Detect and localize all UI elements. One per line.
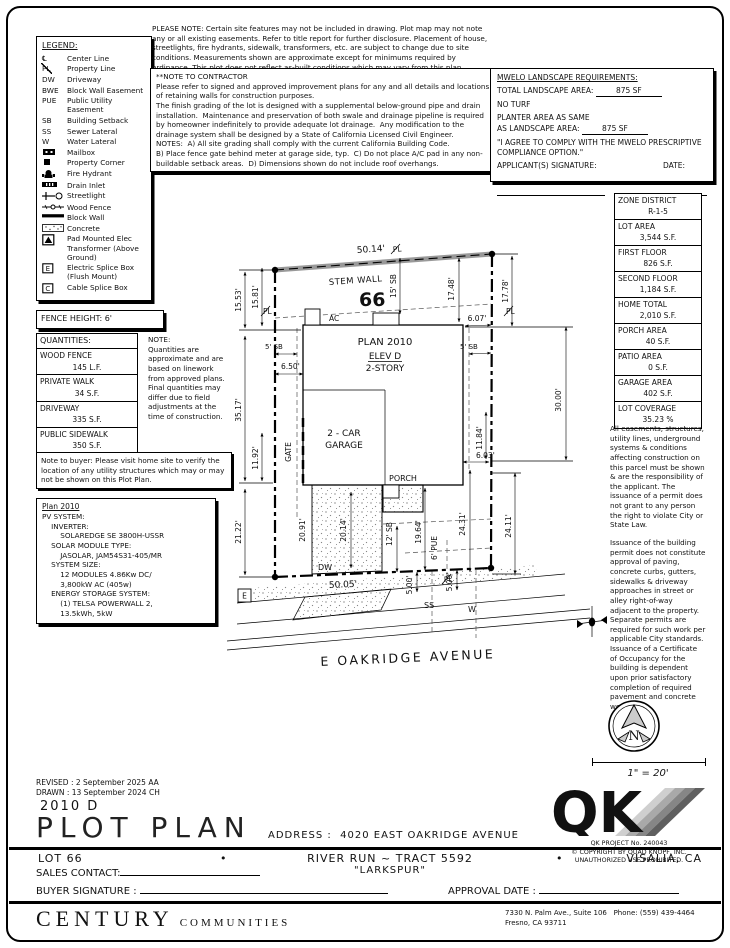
fire-hydrant-symbol: [577, 606, 607, 637]
legend-item: CCable Splice Box: [42, 283, 148, 294]
zone-row: PATIO AREA0 S.F.: [614, 349, 702, 376]
garage-label: GARAGE: [325, 441, 363, 451]
north-label: N: [628, 729, 639, 744]
legend-item: Pad Mounted Elec Transformer (Above Grou…: [42, 234, 148, 261]
quantity-row: PRIVATE WALK34 S.F.: [36, 374, 138, 401]
centerline-icon: ℄: [42, 54, 67, 63]
concrete-icon: [42, 224, 67, 232]
mwelo-planter-value: 875 SF: [582, 124, 648, 135]
garage-label: 2 - CAR: [327, 429, 360, 439]
gate-label: GATE: [284, 442, 293, 462]
brand-secondary: COMMUNITIES: [180, 917, 291, 929]
zone-row: SECOND FLOOR1,184 S.F.: [614, 271, 702, 298]
revision-info: REVISED : 2 September 2025 AA DRAWN : 13…: [36, 778, 160, 798]
dim-label: 6.07': [468, 314, 487, 323]
office-contact: 7330 N. Palm Ave., Suite 106 Phone: (559…: [505, 909, 695, 929]
lot-label: LOT 66: [38, 852, 83, 865]
street-name-label: E OAKRIDGE AVENUE: [320, 646, 495, 669]
svg-text:E: E: [46, 265, 50, 273]
pl-label: PL: [444, 575, 454, 584]
zone-row: PORCH AREA40 S.F.: [614, 323, 702, 350]
legend-box: LEGEND: ℄Center Line PLProperty Line DWD…: [36, 36, 152, 301]
buyer-signature-label: BUYER SIGNATURE :: [36, 886, 137, 897]
buyer-note-box: Note to buyer: Please visit home site to…: [36, 452, 232, 489]
buyer-signature-field[interactable]: [140, 884, 388, 894]
dim-label: 50.14': [357, 244, 386, 256]
divider-line: [9, 901, 721, 904]
streetlight-icon: [42, 191, 67, 201]
porch-footprint: [383, 485, 423, 512]
wood-fence-icon: [42, 203, 67, 211]
dim-label: 24.31': [458, 512, 467, 536]
contractor-note-box: **NOTE TO CONTRACTOR Please refer to sig…: [150, 68, 498, 172]
mwelo-agreement: "I AGREE TO COMPLY WITH THE MWELO PRESCR…: [497, 138, 707, 158]
water-label: W: [468, 605, 476, 614]
legend-item: SSSewer Lateral: [42, 127, 148, 136]
mwelo-title: MWELO LANDSCAPE REQUIREMENTS:: [497, 73, 707, 83]
dim-label: 30.00': [554, 388, 563, 412]
quantities-note: NOTE: Quantities are approximate and are…: [148, 335, 228, 422]
city-label: VISALIA, CA: [598, 852, 702, 865]
setback-label: 5' SB: [460, 343, 478, 351]
sewer-label: SS: [424, 601, 434, 610]
property-corner-icon: [42, 158, 67, 166]
dim-label: 20.14': [339, 518, 348, 542]
zone-row: LOT AREA3,544 S.F.: [614, 219, 702, 246]
legend-item: ℄Center Line: [42, 54, 148, 63]
dim-label: 15.53': [234, 288, 243, 312]
plot-plan-sheet: LEGEND: ℄Center Line PLProperty Line DWD…: [0, 0, 730, 948]
pv-body: PV SYSTEM: INVERTER: SOLAREDGE SE 3800H-…: [42, 512, 210, 618]
fence-height-box: FENCE HEIGHT: 6': [36, 310, 164, 329]
mwelo-date-label: DATE:: [663, 161, 685, 171]
dim-label: 11.84': [475, 426, 484, 450]
water-abbr: W: [42, 137, 67, 146]
permit-note: Issuance of the building permit does not…: [610, 538, 706, 712]
mwelo-box: MWELO LANDSCAPE REQUIREMENTS: TOTAL LAND…: [490, 68, 714, 182]
scale-label: 1" = 20': [592, 768, 704, 779]
right-notes: All easements, structures, utility lines…: [610, 424, 706, 712]
dim-label: 21.22': [234, 520, 243, 544]
quantity-row: PUBLIC SIDEWALK350 S.F.: [36, 427, 138, 454]
office-address: 7330 N. Palm Ave., Suite 106: [505, 909, 607, 917]
builder-logo: CENTURY COMMUNITIES: [36, 906, 290, 932]
address-value: 4020 EAST OAKRIDGE AVENUE: [340, 830, 519, 841]
brand-primary: CENTURY: [36, 906, 174, 932]
legend-item: Block Wall: [42, 213, 148, 222]
contractor-note-title: **NOTE TO CONTRACTOR: [156, 72, 492, 82]
dim-label: 11.92': [251, 446, 260, 470]
legend-item: Fire Hydrant: [42, 169, 148, 179]
mailbox-icon: [42, 148, 67, 156]
dim-label: 17.78': [501, 279, 510, 303]
drain-inlet-icon: [42, 181, 67, 188]
lot-number-label: 66: [359, 289, 385, 311]
revised-line: REVISED : 2 September 2025 AA: [36, 778, 160, 788]
dim-label: 50.05': [329, 580, 358, 591]
legend-item: Wood Fence: [42, 203, 148, 212]
dim-label: 15.81': [251, 285, 260, 309]
svg-text:E: E: [242, 592, 247, 601]
plot-drawing: .thin{stroke:#000;stroke-width:0.7;fill:…: [225, 240, 615, 695]
dim-label: 24.11': [504, 514, 513, 538]
legend-item: Streetlight: [42, 191, 148, 201]
rear-setback-line: [383, 519, 491, 524]
scale-bar: [592, 758, 706, 766]
legend-item: BWEBlock Wall Easement: [42, 86, 148, 95]
mwelo-total-value: 875 SF: [596, 86, 662, 97]
mwelo-total-label: TOTAL LANDSCAPE AREA:: [497, 86, 593, 95]
dim-label: 17.48': [447, 277, 456, 301]
property-line-icon: PL: [42, 64, 50, 73]
pv-title: Plan 2010: [42, 502, 210, 512]
bullet: •: [556, 852, 563, 865]
tract-label: RIVER RUN ~ TRACT 5592: [250, 852, 530, 865]
dim-label: 6.50': [281, 362, 300, 371]
elevation-label: ELEV D: [369, 352, 401, 362]
please-note: PLEASE NOTE: Certain site features may n…: [152, 24, 488, 72]
legend-item: EElectric Splice Box (Flush Mount): [42, 263, 148, 281]
porch-label: PORCH: [389, 474, 417, 483]
ac-label: AC: [329, 314, 339, 323]
office-city: Fresno, CA 93711: [505, 919, 695, 929]
zone-row: GARAGE AREA402 S.F.: [614, 375, 702, 402]
legend-item: DWDriveway: [42, 75, 148, 84]
mwelo-planter-label: AS LANDSCAPE AREA:: [497, 124, 580, 133]
dim-label: 6.03': [476, 451, 495, 460]
quantities-title: QUANTITIES:: [36, 333, 138, 350]
approval-date-field[interactable]: [539, 884, 679, 894]
legend-item: PLProperty Line: [42, 64, 148, 73]
block-wall-easement-abbr: BWE: [42, 86, 67, 95]
zone-row: FIRST FLOOR826 S.F.: [614, 245, 702, 272]
zone-table: ZONE DISTRICTR-1-5 LOT AREA3,544 S.F. FI…: [614, 194, 702, 429]
qk-logo: QK: [553, 782, 705, 836]
sales-contact-label: SALES CONTACT:: [36, 868, 120, 879]
sales-contact-field[interactable]: [120, 866, 260, 876]
legend-item: PUEPublic Utility Easement: [42, 96, 148, 114]
legend-item: WWater Lateral: [42, 137, 148, 146]
dim-label: 19.64': [414, 520, 423, 544]
approval-date-label: APPROVAL DATE :: [448, 886, 536, 897]
legend-title: LEGEND:: [42, 41, 148, 52]
north-arrow: N: [598, 698, 670, 756]
signature-field[interactable]: [497, 187, 605, 196]
pue-abbr: PUE: [42, 96, 67, 105]
stem-wall-label: STEM WALL: [329, 274, 383, 288]
fire-hydrant-icon: [42, 169, 67, 179]
electric-splice-box-icon: E: [42, 263, 67, 274]
quantities-table: QUANTITIES: WOOD FENCE145 L.F. PRIVATE W…: [36, 334, 138, 454]
dim-label: 35.17': [234, 398, 243, 422]
pl-label: PL: [393, 244, 403, 254]
marketing-name: "LARKSPUR": [250, 865, 530, 876]
easements-note: All easements, structures, utility lines…: [610, 424, 706, 530]
divider-line: [9, 847, 721, 850]
legend-item: Mailbox: [42, 148, 148, 157]
pue-offset-line: [405, 548, 491, 553]
pv-system-box: Plan 2010 PV SYSTEM: INVERTER: SOLAREDGE…: [36, 498, 216, 624]
dim-label: 20.91': [298, 518, 307, 542]
legend-item: Drain Inlet: [42, 181, 148, 190]
mwelo-signature-label: APPLICANT(S) SIGNATURE:: [497, 161, 597, 171]
setback-label: 15' SB: [389, 274, 398, 298]
legend-item: Property Corner: [42, 158, 148, 167]
sewer-abbr: SS: [42, 127, 67, 136]
quantity-row: DRIVEWAY335 S.F.: [36, 401, 138, 428]
setback-abbr: SB: [42, 116, 67, 125]
block-wall-icon: [42, 213, 67, 219]
plan-name-label: PLAN 2010: [358, 337, 413, 348]
setback-label: 5' SB: [265, 343, 283, 351]
sheet-title: PLOT PLAN: [36, 811, 252, 844]
address-label: ADDRESS :: [268, 830, 332, 841]
cable-splice-box-icon: C: [42, 283, 67, 294]
story-label: 2-STORY: [366, 364, 405, 374]
quantity-row: WOOD FENCE145 L.F.: [36, 348, 138, 375]
svg-text:C: C: [45, 285, 50, 293]
mwelo-no-turf: NO TURF: [497, 100, 707, 110]
setback-label: 12' SB: [385, 522, 394, 546]
legend-item: Concrete: [42, 224, 148, 233]
electric-splice-box-symbol: E: [238, 589, 251, 602]
driveway-label: DW: [318, 563, 332, 572]
ac-pad: [305, 309, 320, 325]
legend-item: SBBuilding Setback: [42, 116, 148, 125]
zone-row: HOME TOTAL2,010 S.F.: [614, 297, 702, 324]
bullet: •: [220, 852, 227, 865]
transformer-icon: [42, 234, 67, 246]
driveway-abbr: DW: [42, 75, 67, 84]
dim-label: 5.00': [405, 576, 414, 595]
drawn-line: DRAWN : 13 September 2024 CH: [36, 788, 160, 798]
contractor-note-body: Please refer to signed and approved impr…: [156, 82, 492, 169]
zone-row: ZONE DISTRICTR-1-5: [614, 193, 702, 220]
office-phone: Phone: (559) 439-4464: [614, 909, 695, 917]
pue-label: 6' PUE: [430, 536, 439, 560]
svg-text:QK: QK: [553, 782, 645, 836]
mwelo-planter-line1: PLANTER AREA AS SAME: [497, 113, 707, 123]
